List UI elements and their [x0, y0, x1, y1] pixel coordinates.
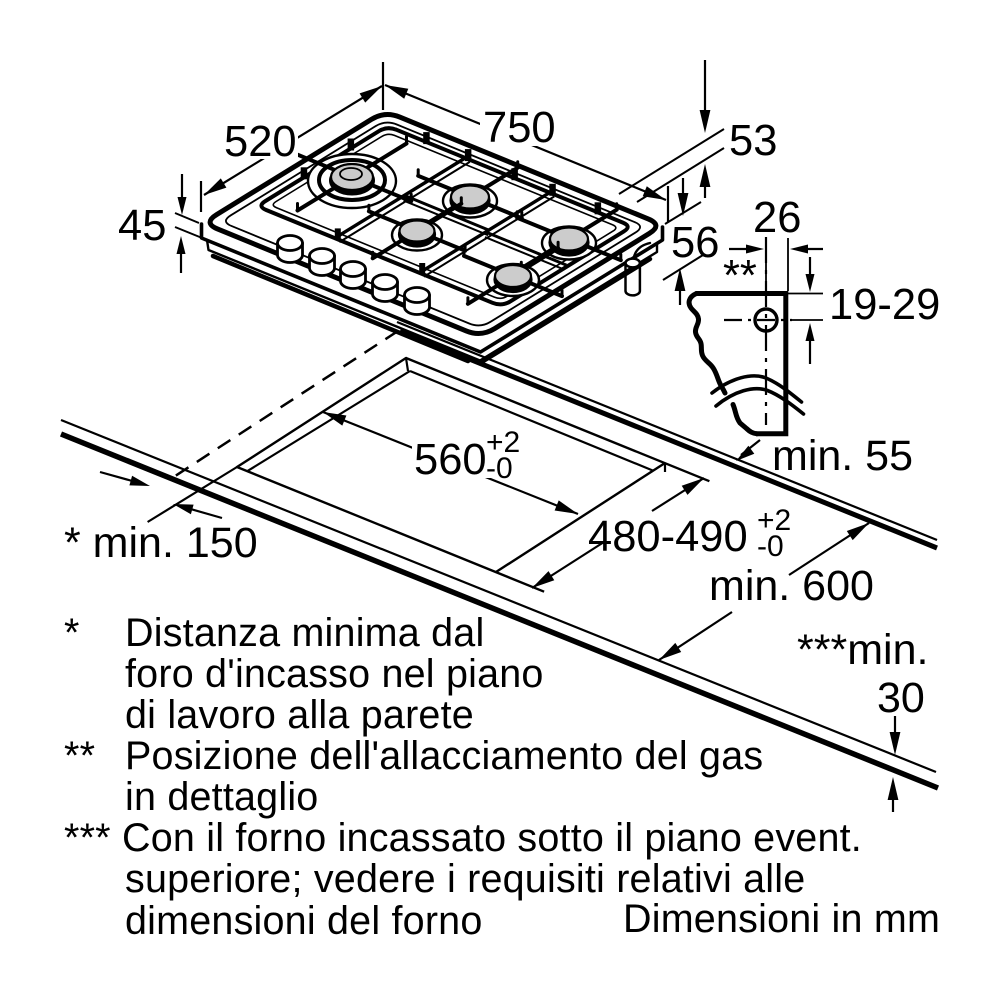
svg-text:foro d'incasso nel piano: foro d'incasso nel piano: [125, 652, 544, 696]
svg-text:Posizione dell'allacciamento d: Posizione dell'allacciamento del gas: [125, 734, 763, 778]
svg-text:-0: -0: [757, 530, 784, 563]
svg-text:di lavoro alla parete: di lavoro alla parete: [125, 693, 474, 737]
svg-text:dimensioni del forno: dimensioni del forno: [125, 899, 483, 943]
svg-text:30: 30: [877, 674, 925, 722]
svg-text:560: 560: [414, 436, 487, 484]
svg-text:min. 55: min. 55: [772, 432, 913, 480]
svg-text:Con il forno incassato sotto i: Con il forno incassato sotto il piano ev…: [122, 816, 862, 860]
svg-text:**: **: [64, 734, 95, 778]
svg-text:***min.: ***min.: [797, 626, 928, 674]
svg-text:superiore; vedere i requisiti: superiore; vedere i requisiti relativi a…: [125, 857, 805, 901]
svg-text:**: **: [723, 252, 757, 300]
svg-text:Dimensioni in mm: Dimensioni in mm: [623, 897, 940, 941]
svg-text:45: 45: [118, 202, 166, 250]
svg-text:***: ***: [64, 816, 111, 860]
svg-text:in dettaglio: in dettaglio: [125, 775, 318, 819]
svg-text:min. 600: min. 600: [709, 562, 874, 610]
svg-text:Distanza minima dal: Distanza minima dal: [125, 611, 484, 655]
svg-text:* min. 150: * min. 150: [64, 519, 258, 567]
svg-text:53: 53: [729, 117, 777, 165]
svg-text:*: *: [64, 611, 80, 655]
svg-text:520: 520: [224, 118, 297, 166]
svg-text:26: 26: [753, 194, 801, 242]
svg-text:19-29: 19-29: [829, 281, 940, 329]
svg-text:480-490: 480-490: [588, 513, 748, 561]
svg-text:-0: -0: [486, 452, 513, 485]
svg-text:750: 750: [483, 104, 556, 152]
